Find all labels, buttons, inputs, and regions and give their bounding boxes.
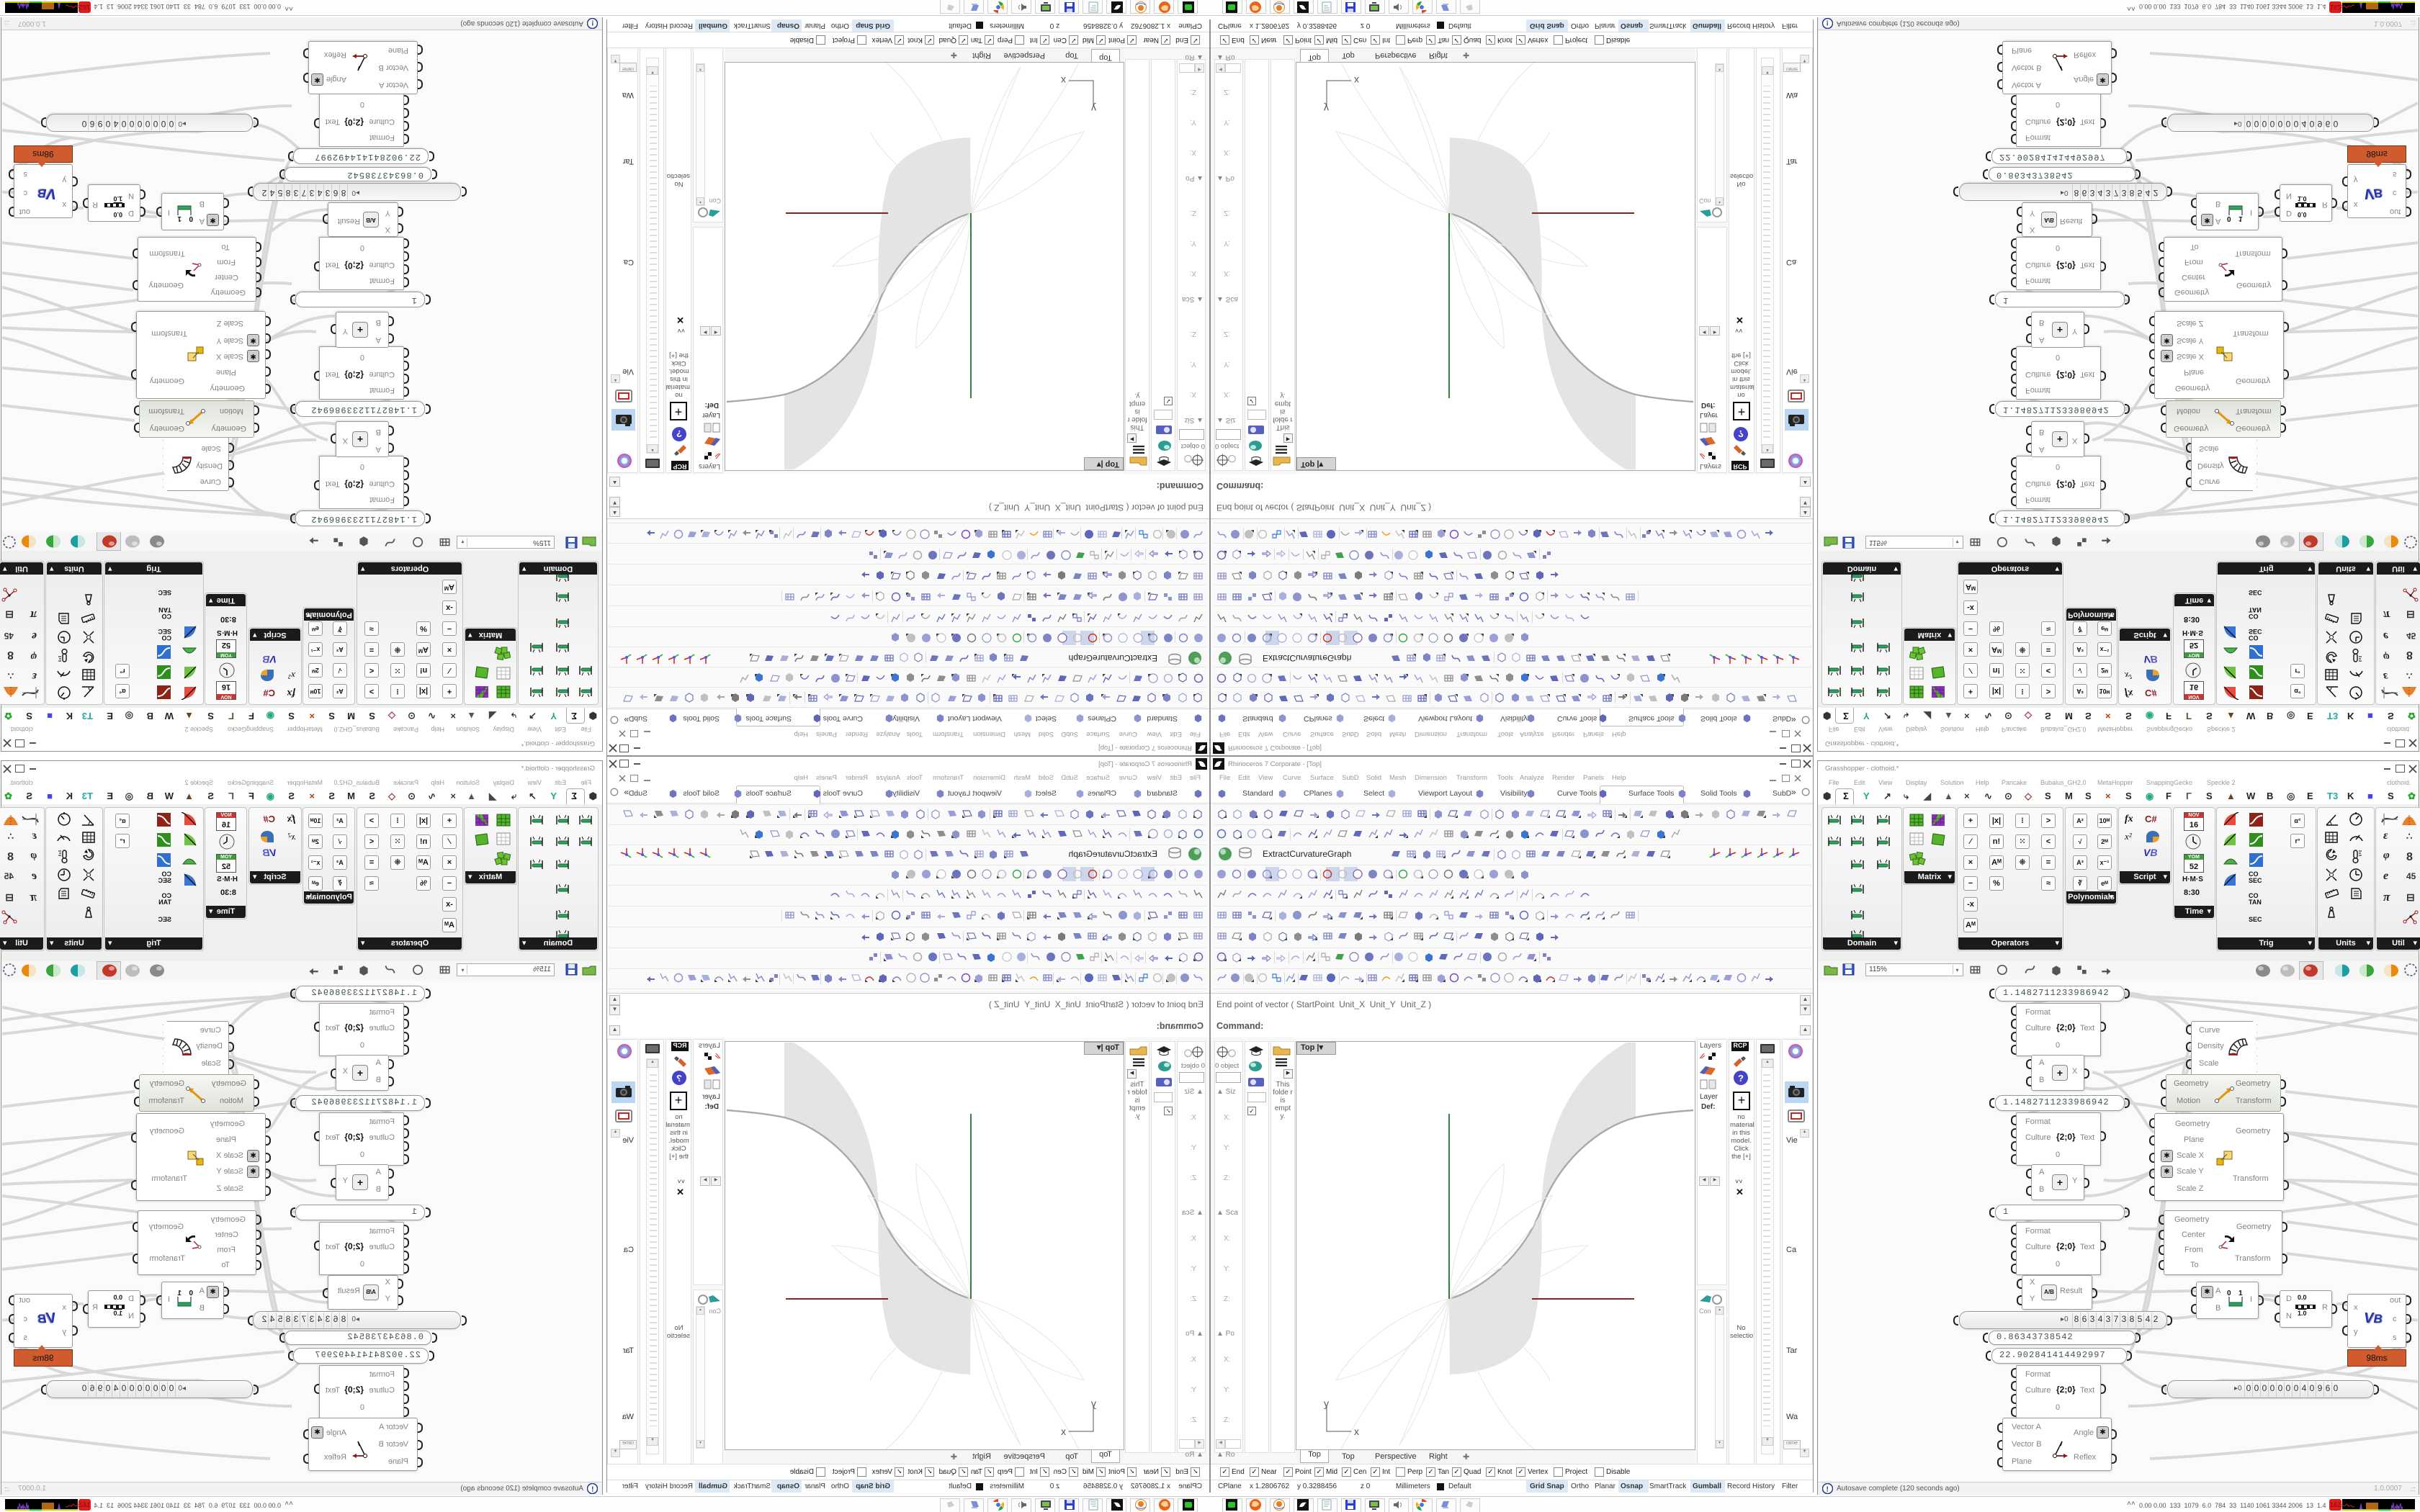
- svg-text:1: 1: [2238, 1290, 2243, 1297]
- svg-text:!: !: [1827, 19, 1829, 27]
- svg-text:y: y: [1324, 1398, 1329, 1409]
- svg-text:x: x: [1354, 75, 1359, 86]
- svg-text:0: 0: [2227, 1290, 2231, 1297]
- svg-text:y: y: [1324, 103, 1329, 114]
- svg-text:?: ?: [1738, 1073, 1744, 1084]
- svg-text:?: ?: [1738, 428, 1744, 439]
- svg-text:x: x: [1354, 1426, 1359, 1437]
- svg-text:y: y: [1091, 103, 1096, 114]
- svg-text:y: y: [1091, 1398, 1096, 1409]
- svg-text:0: 0: [189, 215, 193, 222]
- svg-text:!: !: [1827, 1486, 1829, 1494]
- svg-text:0: 0: [189, 1290, 193, 1297]
- svg-text:1: 1: [2238, 215, 2243, 222]
- svg-text:x: x: [1061, 1426, 1066, 1437]
- svg-text:1: 1: [177, 1290, 181, 1297]
- svg-text:!: !: [591, 19, 593, 27]
- svg-text:x: x: [1061, 75, 1066, 86]
- svg-text:?: ?: [676, 428, 682, 439]
- svg-text:?: ?: [676, 1073, 682, 1084]
- svg-text:!: !: [591, 1486, 593, 1494]
- svg-text:0: 0: [2227, 215, 2231, 222]
- svg-text:1: 1: [177, 215, 181, 222]
